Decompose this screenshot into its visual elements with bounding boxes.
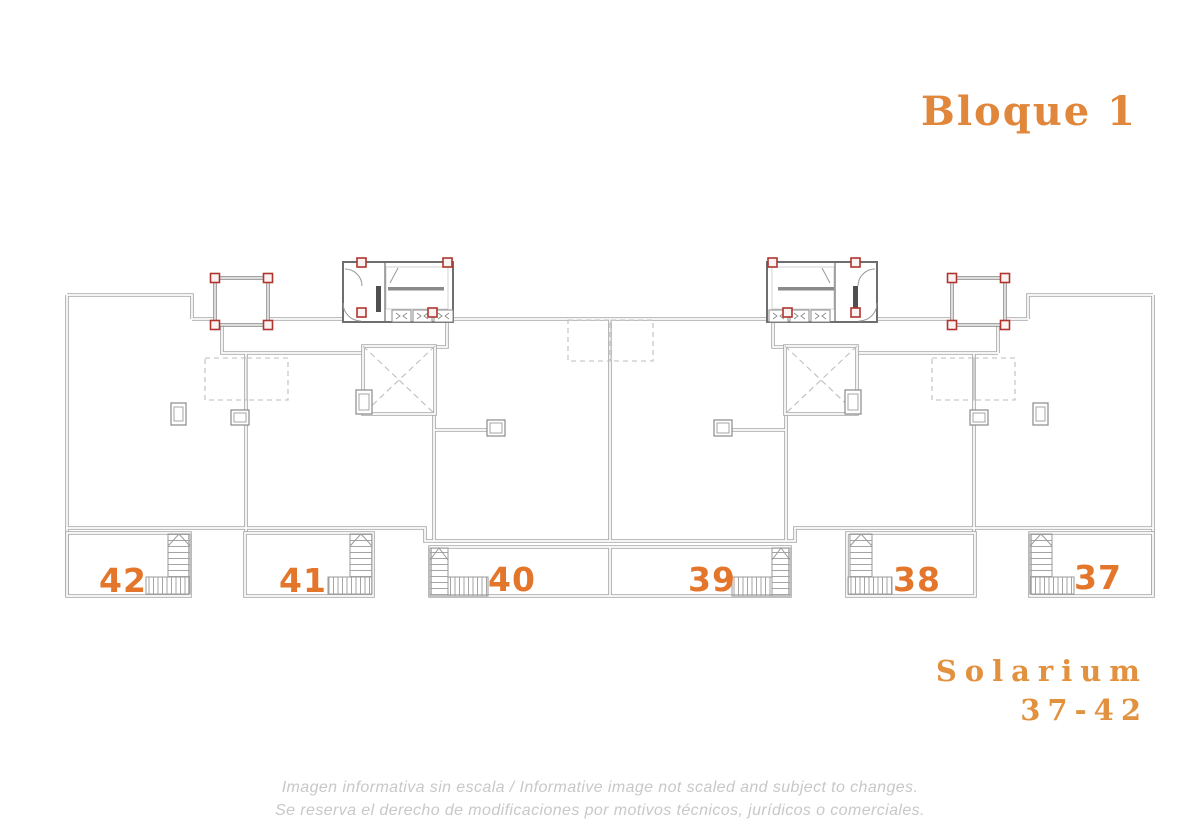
stair-core-right	[767, 258, 877, 322]
unit-number-38: 38	[893, 560, 941, 599]
unit-number-40: 40	[488, 560, 536, 599]
disclaimer-line-1: Imagen informativa sin escala / Informat…	[0, 776, 1200, 799]
block-title: Bloque 1	[921, 88, 1137, 135]
unit-number-41: 41	[279, 561, 327, 600]
disclaimer-line-2: Se reserva el derecho de modificaciones …	[0, 799, 1200, 822]
disclaimer: Imagen informativa sin escala / Informat…	[0, 776, 1200, 822]
floorplan-page: 42 41 40 39 38 37 Bloque 1 Solarium 37-4…	[0, 0, 1200, 831]
unit-number-39: 39	[688, 560, 736, 599]
solarium-label: Solarium 37-42	[936, 654, 1148, 727]
stair-core-left	[343, 258, 453, 322]
pergola-right	[948, 274, 1010, 330]
unit-number-42: 42	[99, 561, 147, 600]
unit-number-37: 37	[1074, 558, 1122, 597]
solarium-label-text: Solarium	[936, 654, 1148, 688]
pergola-left	[211, 274, 273, 330]
solarium-range-text: 37-42	[936, 693, 1148, 727]
